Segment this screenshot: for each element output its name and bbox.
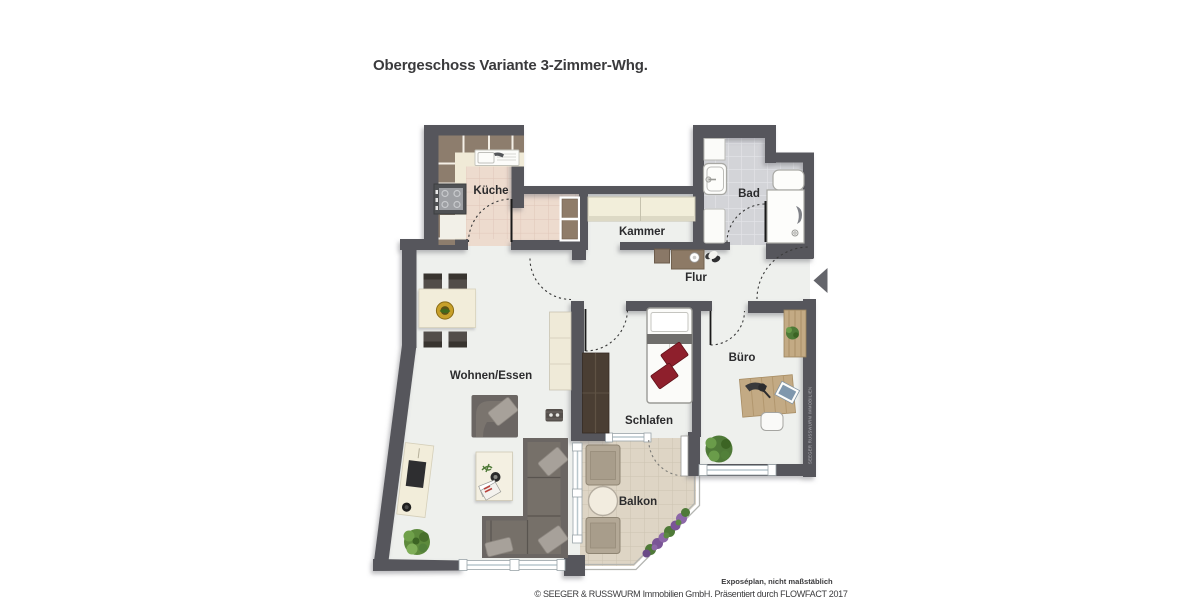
- svg-text:Exposéplan, nicht maßstäblich: Exposéplan, nicht maßstäblich: [721, 577, 833, 586]
- svg-text:Obergeschoss Variante 3-Zimmer: Obergeschoss Variante 3-Zimmer-Whg.: [373, 57, 648, 74]
- svg-text:Küche: Küche: [473, 185, 508, 197]
- svg-text:Flur: Flur: [685, 272, 707, 284]
- svg-text:Wohnen/Essen: Wohnen/Essen: [450, 370, 532, 382]
- svg-text:© SEEGER & RUSSWURM Immobilien: © SEEGER & RUSSWURM Immobilien GmbH. Prä…: [534, 589, 847, 599]
- svg-text:Bad: Bad: [738, 188, 760, 200]
- svg-text:Kammer: Kammer: [619, 226, 666, 238]
- svg-text:Schlafen: Schlafen: [625, 415, 673, 427]
- svg-text:Balkon: Balkon: [619, 496, 657, 508]
- svg-text:Büro: Büro: [729, 352, 756, 364]
- svg-text:SEEGER RUSSWURM IMMOBILIEN: SEEGER RUSSWURM IMMOBILIEN: [808, 387, 813, 464]
